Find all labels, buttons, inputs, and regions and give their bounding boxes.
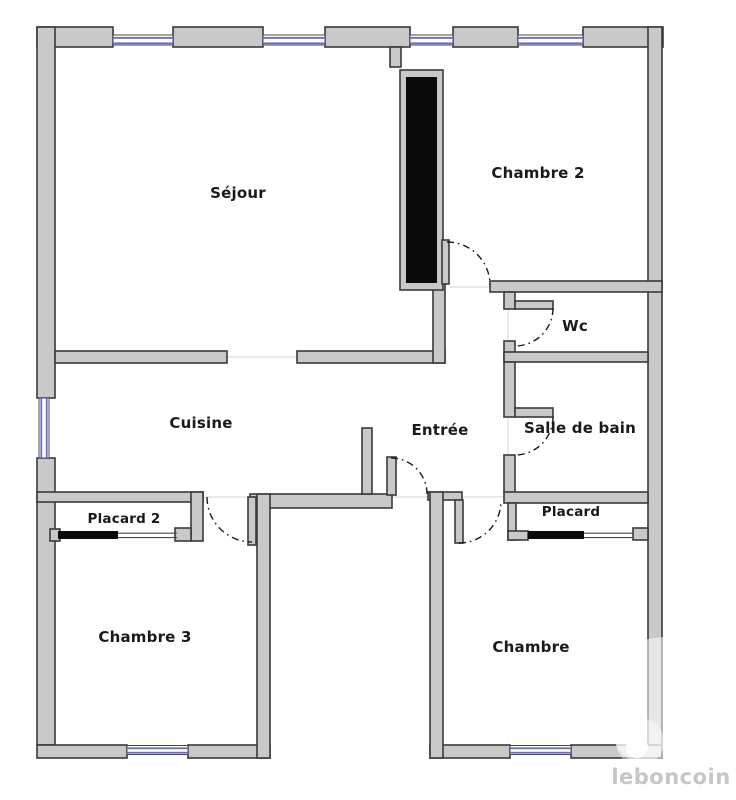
room-label-chambre3: Chambre 3: [98, 628, 191, 646]
wc-door-arc: [515, 308, 553, 346]
floorplan-canvas: Séjour Chambre 2 Wc Cuisine Entrée Salle…: [0, 0, 736, 800]
window-top-1: [113, 35, 173, 45]
room-label-wc: Wc: [562, 317, 588, 335]
room-label-chambre2: Chambre 2: [491, 164, 584, 182]
room-label-sejour: Séjour: [210, 184, 266, 202]
closet-rods: [58, 531, 633, 539]
threshold-lines: [203, 285, 508, 497]
window-left: [39, 398, 49, 458]
window-bottom-right: [510, 746, 571, 755]
chambre3-door-arc: [207, 497, 252, 542]
watermark-logo: [600, 631, 720, 768]
watermark-brand-text: leboncoin: [611, 765, 730, 789]
room-label-placard2: Placard 2: [88, 511, 161, 527]
floorplan-drawing: [0, 0, 736, 800]
room-label-chambre: Chambre: [492, 638, 569, 656]
room-label-placard: Placard: [542, 504, 600, 520]
placard2-rod: [58, 531, 118, 539]
room-label-salle-de-bain: Salle de bain: [524, 419, 636, 437]
placard-rod: [528, 531, 584, 539]
window-top-2: [263, 35, 325, 45]
window-top-3: [410, 35, 453, 45]
window-top-4: [518, 35, 583, 45]
chambre-door-arc: [459, 501, 501, 543]
room-label-entree: Entrée: [411, 421, 468, 439]
window-bottom-left: [127, 746, 188, 755]
chambre2-door-arc: [447, 242, 490, 285]
flue-black-feature: [406, 77, 437, 283]
room-label-cuisine: Cuisine: [169, 414, 232, 432]
